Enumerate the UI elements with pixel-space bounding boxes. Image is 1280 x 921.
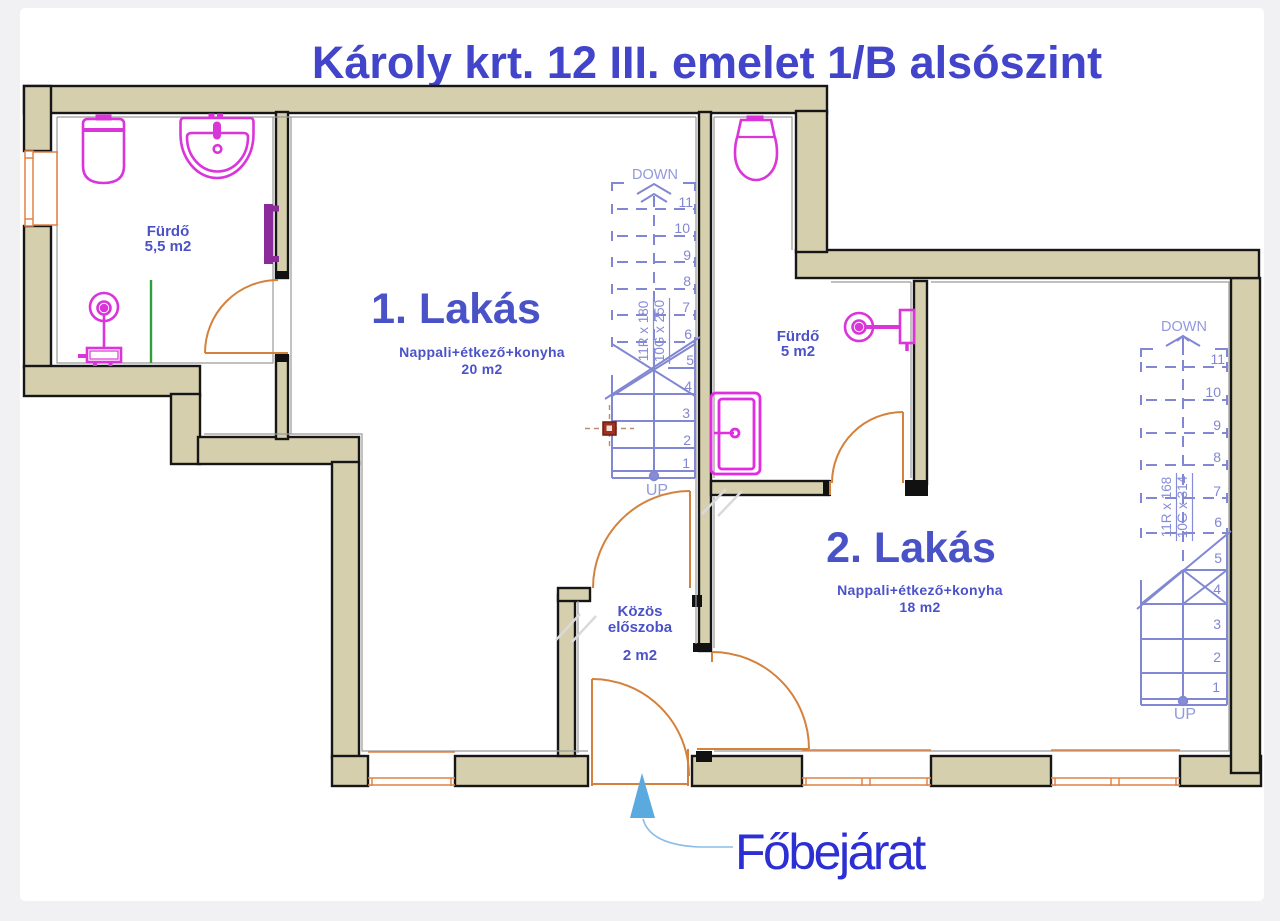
svg-text:7: 7 <box>1213 483 1221 499</box>
svg-text:5: 5 <box>686 352 694 368</box>
svg-text:8: 8 <box>1213 449 1221 465</box>
svg-text:8: 8 <box>683 273 691 289</box>
svg-text:Főbejárat: Főbejárat <box>735 824 926 880</box>
svg-text:5: 5 <box>1214 550 1222 566</box>
svg-text:5,5 m2: 5,5 m2 <box>145 238 192 255</box>
svg-text:Közös: Közös <box>618 603 663 620</box>
svg-text:2: 2 <box>1213 649 1221 665</box>
svg-text:10G x 314: 10G x 314 <box>1175 475 1190 538</box>
svg-text:2: 2 <box>683 432 691 448</box>
svg-text:11R x 168: 11R x 168 <box>1159 477 1174 538</box>
svg-text:11: 11 <box>678 194 693 210</box>
svg-text:Nappali+étkező+konyha: Nappali+étkező+konyha <box>399 344 565 360</box>
svg-text:1. Lakás: 1. Lakás <box>371 285 541 333</box>
svg-text:DOWN: DOWN <box>632 167 678 183</box>
svg-text:10: 10 <box>1205 384 1221 400</box>
svg-text:10G x 250: 10G x 250 <box>652 300 667 362</box>
svg-text:9: 9 <box>1213 417 1221 433</box>
svg-text:9: 9 <box>683 247 691 263</box>
svg-text:20 m2: 20 m2 <box>461 361 502 377</box>
svg-text:Károly krt. 12 III. emelet 1/B: Károly krt. 12 III. emelet 1/B alsószint <box>312 37 1102 88</box>
svg-text:2 m2: 2 m2 <box>623 647 657 664</box>
svg-text:1: 1 <box>682 455 690 471</box>
svg-text:18 m2: 18 m2 <box>899 599 940 615</box>
svg-text:előszoba: előszoba <box>608 619 673 636</box>
svg-text:7: 7 <box>682 299 690 315</box>
svg-text:3: 3 <box>682 405 690 421</box>
svg-text:10: 10 <box>674 220 690 236</box>
svg-text:6: 6 <box>1214 514 1222 530</box>
svg-text:5 m2: 5 m2 <box>781 343 815 360</box>
svg-text:6: 6 <box>684 326 692 342</box>
svg-text:Nappali+étkező+konyha: Nappali+étkező+konyha <box>837 582 1003 598</box>
svg-text:UP: UP <box>646 482 668 499</box>
svg-text:1: 1 <box>1212 679 1220 695</box>
svg-text:UP: UP <box>1174 706 1196 723</box>
svg-text:11R x 180: 11R x 180 <box>636 301 651 362</box>
svg-text:DOWN: DOWN <box>1161 319 1207 335</box>
svg-text:2. Lakás: 2. Lakás <box>826 524 996 572</box>
svg-text:11: 11 <box>1210 351 1225 367</box>
svg-text:4: 4 <box>1213 581 1221 597</box>
svg-text:4: 4 <box>684 378 692 394</box>
svg-text:3: 3 <box>1213 616 1221 632</box>
